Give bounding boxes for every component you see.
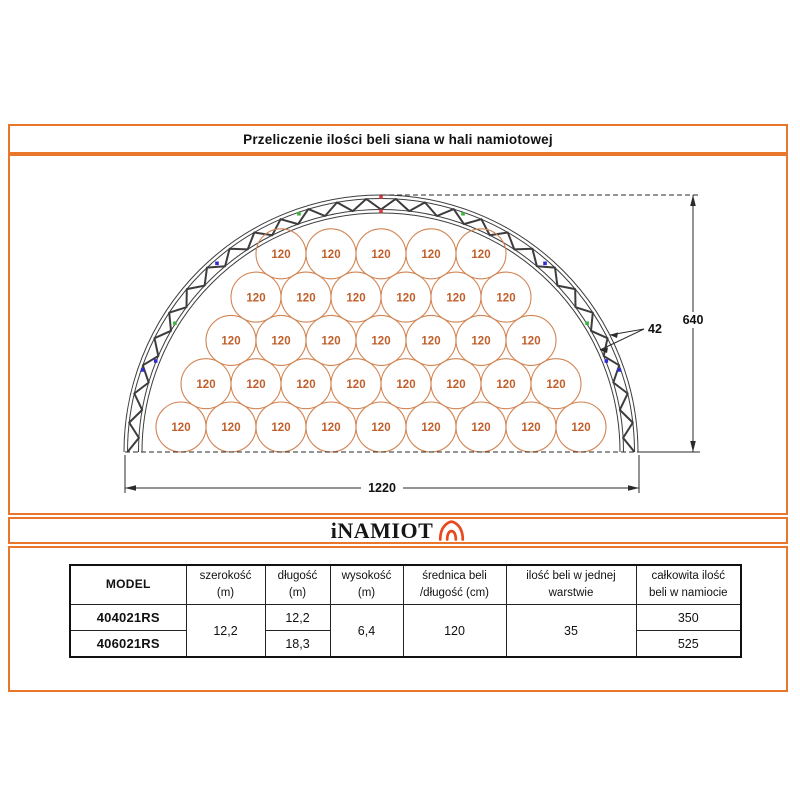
model-cell: 404021RS [70,605,186,631]
brand-logo-text: iNAMIOT [331,520,434,542]
logo-bar: iNAMIOT [8,517,788,544]
col-header-szerokosc: szerokość (m) [186,565,265,605]
spec-table: MODEL szerokość (m) długość (m) wysokość… [69,564,742,658]
model-cell: 406021RS [70,631,186,658]
table-row: 404021RS 12,2 12,2 6,4 120 35 350 [70,605,741,631]
srednica-cell: 120 [403,605,506,658]
calkowita-cell: 350 [636,605,741,631]
col-header-srednica: średnica beli /długość (cm) [403,565,506,605]
col-header-calkowita: całkowita ilość beli w namiocie [636,565,741,605]
col-header-model: MODEL [70,565,186,605]
col-header-wysokosc: wysokość (m) [330,565,403,605]
col-header-ilosc-warstwa: ilość beli w jednej warstwie [506,565,636,605]
table-header-row: MODEL szerokość (m) długość (m) wysokość… [70,565,741,605]
tent-logo-icon [438,520,465,541]
dlugosc-cell: 12,2 [265,605,330,631]
szerokosc-cell: 12,2 [186,605,265,658]
calkowita-cell: 525 [636,631,741,658]
diagram-panel [8,154,788,515]
page-title: Przeliczenie ilości beli siana w hali na… [243,132,553,147]
wysokosc-cell: 6,4 [330,605,403,658]
dlugosc-cell: 18,3 [265,631,330,658]
ilosc-warstwa-cell: 35 [506,605,636,658]
title-bar: Przeliczenie ilości beli siana w hali na… [8,124,788,154]
col-header-dlugosc: długość (m) [265,565,330,605]
spec-table-panel: MODEL szerokość (m) długość (m) wysokość… [8,546,788,692]
